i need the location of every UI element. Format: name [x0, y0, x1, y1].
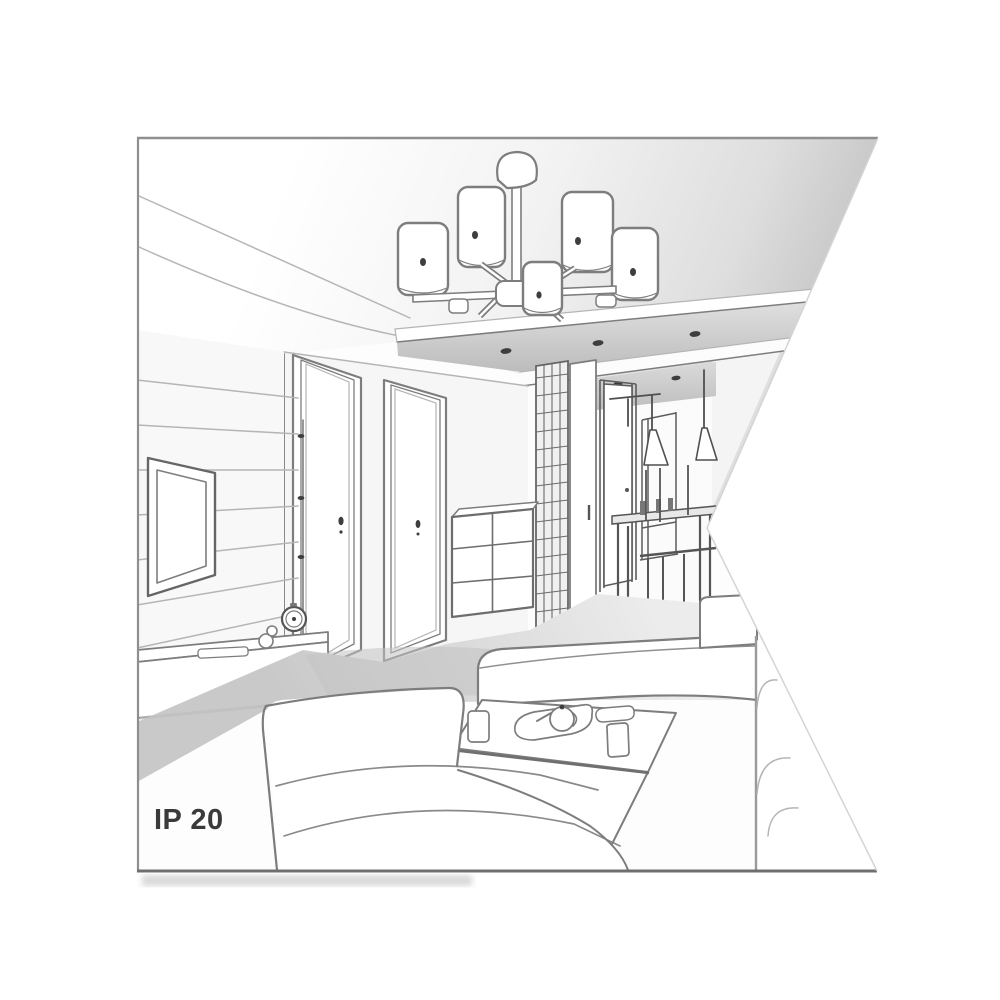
hallway	[597, 362, 717, 620]
bottom-shadow	[142, 875, 472, 886]
scene	[137, 137, 895, 872]
small-tray	[596, 706, 634, 722]
product-illustration: IP 20	[0, 0, 1000, 1000]
room-line-drawing	[0, 0, 1000, 1000]
wardrobe	[536, 360, 596, 630]
drawer-cabinet	[452, 502, 538, 617]
chandelier-shade	[562, 192, 613, 272]
chandelier-shade	[398, 223, 448, 295]
chandelier-canopy	[497, 152, 537, 188]
door-handle	[416, 520, 421, 528]
chandelier-shade	[458, 187, 505, 267]
tv	[148, 458, 215, 596]
door-right	[384, 380, 446, 661]
cup	[607, 723, 629, 757]
ip-rating-label: IP 20	[154, 804, 224, 837]
chandelier-shade-cap	[596, 295, 616, 307]
wardrobe-door	[570, 360, 596, 612]
door-handle	[625, 488, 629, 492]
door-handle	[338, 517, 343, 525]
chandelier-shade	[612, 228, 658, 300]
table-item	[668, 498, 673, 511]
chandelier-shade	[523, 262, 562, 315]
remote-control	[198, 647, 248, 659]
drinking-glass	[468, 711, 489, 742]
chandelier-shade-cap	[449, 299, 468, 313]
